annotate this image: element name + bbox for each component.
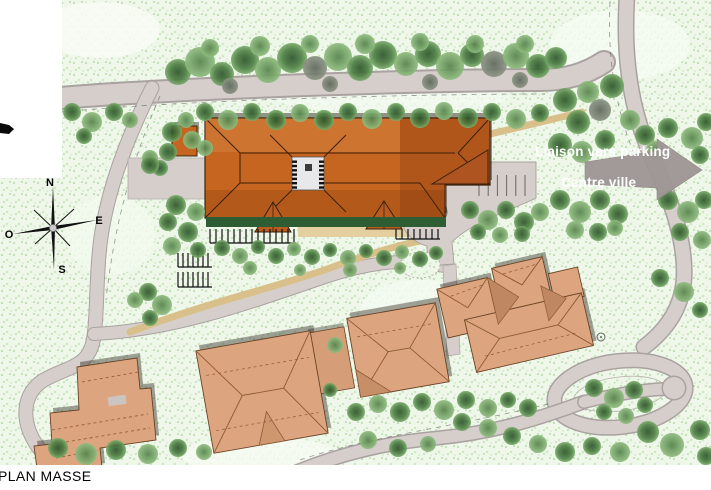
lower-building-3 [346,297,453,397]
liaison-vers-parking-label: Liaison vers parking [535,144,670,159]
pergola-hedge [206,217,446,227]
compass-east-label: E [95,215,102,227]
white-mask [0,0,62,178]
site-plan-map: N E O S [0,0,711,465]
site-plan-page: N E O S Liaison vers parking Centre vill… [0,0,711,490]
plan-masse-title: PLAN MASSE [0,468,91,484]
centre-ville-label: Centre ville [561,175,636,190]
compass-west-label: O [5,229,14,241]
compass-north-label: N [46,177,54,189]
site-plan-canvas: N E O S Liaison vers parking Centre vill… [0,0,711,465]
compass-south-label: S [58,264,65,276]
courtyard-feature [305,164,312,171]
